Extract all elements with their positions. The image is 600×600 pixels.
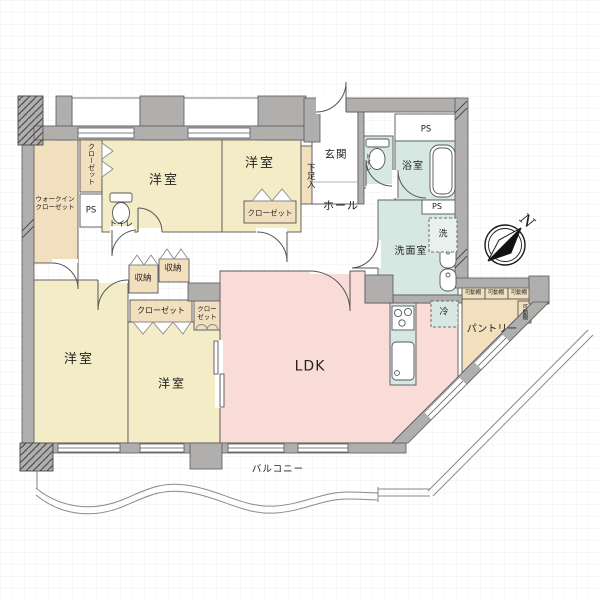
hatch-top-left [18,96,43,145]
wall-top [34,126,306,140]
label-balcony: バルコニー [252,464,304,476]
label-bathroom: 浴室 [402,161,424,174]
label-shoe-box: 下足入 [306,163,315,189]
label-bedroom-top-mid: 洋室 [245,156,275,172]
label-entrance: 玄関 [325,148,348,161]
window-bay-2 [183,98,259,126]
label-ps-right: PS [432,202,442,212]
label-toilet-entrance: トイレ [364,153,370,171]
label-shelf-2: 可動棚 [488,290,504,297]
label-bedroom-top-left: 洋室 [149,173,179,189]
label-toilet-west: トイレ [109,219,133,229]
label-washer: 洗 [438,229,447,240]
label-closet-vertical: クローゼット [88,143,95,185]
label-ps-top: PS [421,125,432,136]
label-bedroom-bottom-left: 洋室 [64,352,94,368]
label-storage-1: 収納 [134,274,151,285]
label-ps-left: PS [86,206,97,217]
label-closet-mid: クローゼット [137,306,185,316]
sink-icon-2 [440,269,456,291]
label-shelf-3: 可動棚 [511,290,527,297]
toilet-entrance-icon [366,139,389,147]
label-washroom: 洗面室 [395,246,428,259]
hatch-bottom-left [20,443,53,471]
label-hall: ホール [323,199,359,213]
label-closet-small: クロー ゼット [197,305,217,321]
floorplan-canvas: ウォークイン クローゼット クローゼット PS トイレ 洋室 洋室 クローゼット… [0,0,600,600]
label-bedroom-bottom-mid: 洋室 [158,377,186,392]
label-pantry: パントリー [467,324,518,337]
label-shelf-1: 可動棚 [465,290,481,297]
label-closet-top-mid: クローゼット [248,208,293,217]
floorplan-drawing [0,0,600,600]
window-bay-1 [72,98,140,126]
wall-top-entrance [346,98,458,112]
wall-left [22,96,34,443]
label-fridge: 冷 [439,307,448,318]
wall-pantry-top [455,278,535,288]
wall-hall-block [365,275,393,303]
label-storage-2: 収納 [164,264,181,275]
toilet-west-icon [110,193,132,202]
label-walk-in-closet: ウォークイン クローゼット [36,195,75,211]
label-ldk: LDK [295,358,326,376]
label-shelf-4: 可動棚 [521,304,526,320]
